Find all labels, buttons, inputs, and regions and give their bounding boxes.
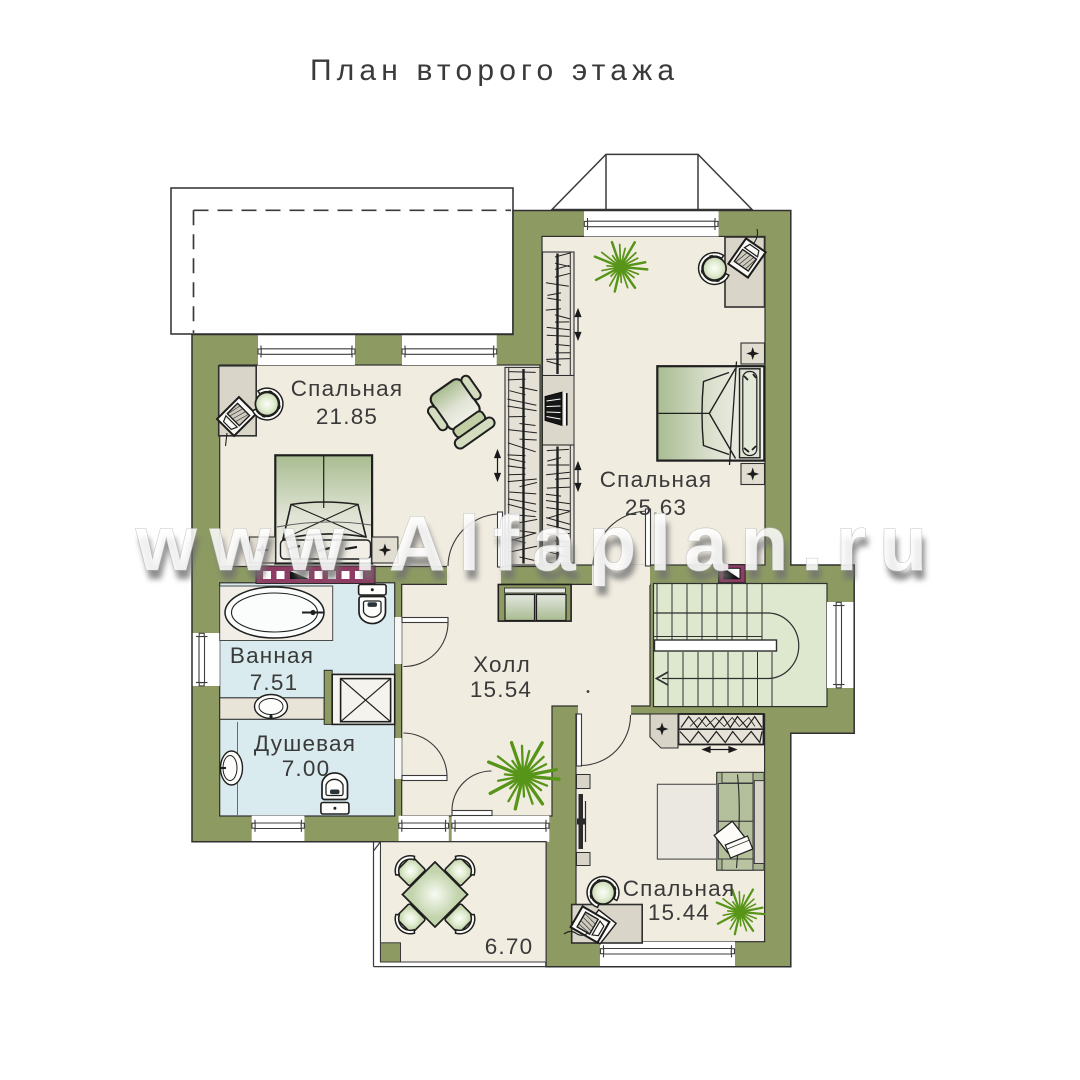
svg-text:6.70: 6.70 [485, 934, 534, 959]
svg-text:15.54: 15.54 [470, 677, 532, 702]
svg-text:Душевая: Душевая [254, 731, 356, 756]
svg-text:7.00: 7.00 [282, 756, 331, 781]
svg-text:Спальная: Спальная [291, 376, 404, 401]
svg-text:Спальная: Спальная [623, 876, 736, 901]
svg-text:Холл: Холл [473, 652, 531, 677]
svg-text:7.51: 7.51 [250, 670, 299, 695]
svg-text:21.85: 21.85 [316, 404, 378, 429]
svg-text:Спальная: Спальная [600, 467, 713, 492]
svg-text:Ванная: Ванная [230, 643, 314, 668]
svg-text:План второго этажа: План второго этажа [310, 54, 675, 87]
svg-text:15.44: 15.44 [648, 900, 710, 925]
